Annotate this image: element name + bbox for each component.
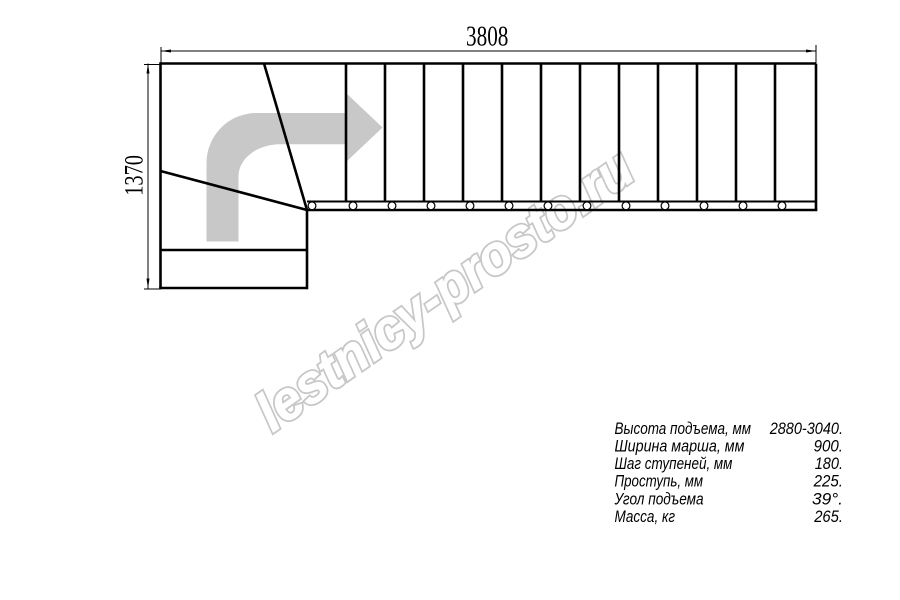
- svg-text:39°.: 39°.: [812, 490, 843, 508]
- svg-text:900.: 900.: [814, 437, 843, 455]
- svg-text:180.: 180.: [815, 455, 843, 473]
- svg-text:Ширина марша, мм: Ширина марша, мм: [615, 437, 745, 455]
- svg-text:Высота подъема, мм: Высота подъема, мм: [615, 420, 752, 438]
- svg-text:Шаг ступеней, мм: Шаг ступеней, мм: [615, 455, 733, 473]
- svg-text:lestnicy-prosto.ru: lestnicy-prosto.ru: [244, 137, 644, 443]
- svg-text:225.: 225.: [813, 473, 843, 491]
- svg-text:Угол подъема: Угол подъема: [614, 490, 704, 508]
- svg-text:2880-3040.: 2880-3040.: [769, 420, 843, 438]
- svg-text:265.: 265.: [813, 508, 843, 526]
- svg-text:Масса, кг: Масса, кг: [615, 508, 676, 526]
- svg-text:3808: 3808: [466, 22, 508, 52]
- svg-text:Проступь, мм: Проступь, мм: [615, 473, 704, 491]
- svg-text:1370: 1370: [120, 155, 149, 196]
